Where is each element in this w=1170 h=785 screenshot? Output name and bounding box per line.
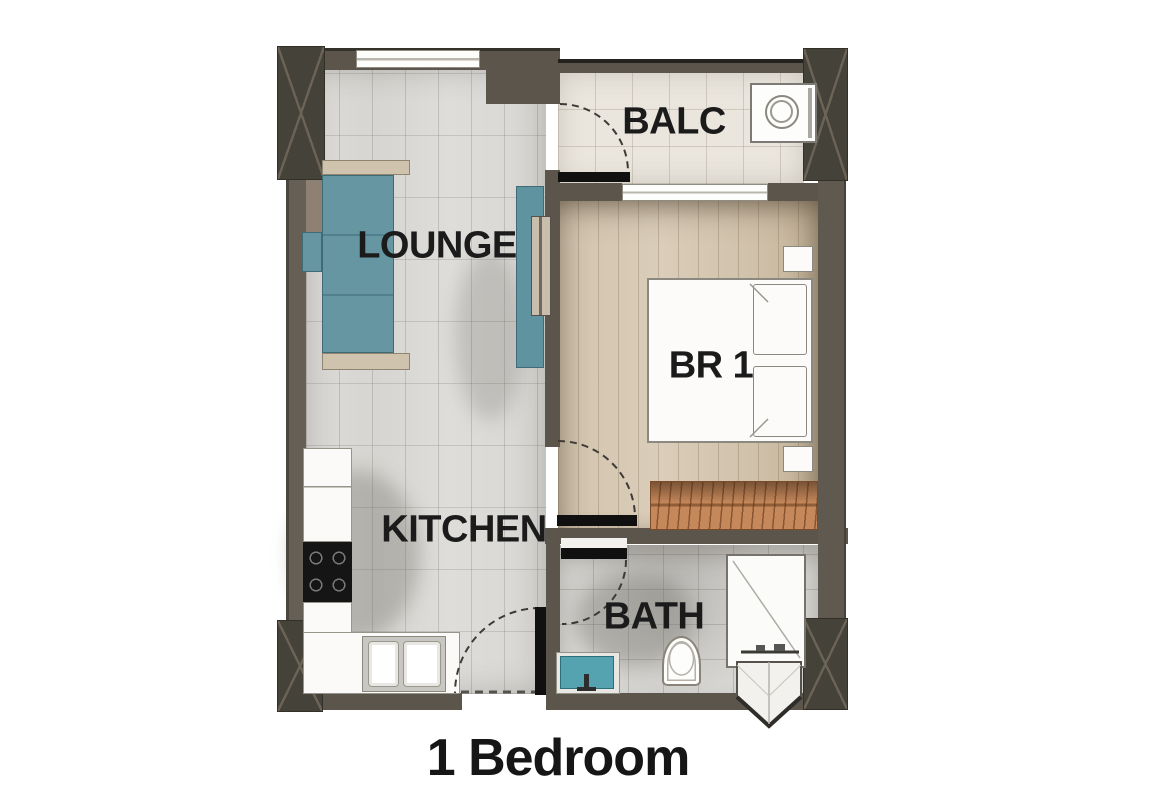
kitchen-upper-cabinet: [303, 448, 352, 542]
wall-right: [818, 180, 846, 620]
room-label-lounge: LOUNGE: [357, 225, 517, 268]
room-label-bath: BATH: [604, 596, 705, 639]
room-label-balcony: BALC: [622, 101, 726, 144]
plan-title: 1 Bedroom: [427, 728, 690, 785]
floorplan-canvas: LOUNGE BALC BR 1 KITCHEN BATH 1 Bedroom: [0, 0, 1170, 785]
sofa-armrest: [322, 353, 410, 370]
wall-bedroom-top-left: [558, 183, 622, 201]
kitchen-lower-cabinet: [303, 602, 352, 634]
floor-shadow: [455, 250, 525, 420]
tv: [531, 216, 551, 316]
column-bottom-right: [803, 618, 848, 710]
side-table: [302, 232, 322, 272]
washer-hinge: [808, 88, 812, 138]
kitchen-sink: [362, 636, 446, 692]
lounge-window: [356, 50, 480, 68]
wardrobe: [650, 481, 818, 530]
sink-basin: [368, 641, 399, 687]
washer-door: [765, 95, 799, 129]
sink-basin: [403, 641, 441, 687]
washing-machine: [750, 83, 817, 143]
pillow: [753, 284, 807, 355]
nightstand: [783, 446, 813, 472]
floor-plan: LOUNGE BALC BR 1 KITCHEN BATH: [0, 0, 1170, 785]
bedroom-window: [622, 184, 768, 201]
wall-bedroom-top-right: [768, 183, 818, 201]
room-label-bedroom: BR 1: [669, 345, 754, 388]
bath-faucet-base: [577, 687, 596, 691]
nightstand: [783, 246, 813, 272]
pillow: [753, 366, 807, 437]
sofa-backrest: [322, 160, 410, 175]
toilet: [662, 636, 701, 686]
bath-door-opening: [561, 538, 627, 548]
room-label-kitchen: KITCHEN: [381, 509, 546, 552]
shower: [726, 554, 806, 668]
washer-drum: [770, 100, 793, 123]
cooktop: [303, 542, 352, 602]
wall-balcony-partition: [486, 48, 560, 104]
column-top-left: [277, 46, 325, 180]
